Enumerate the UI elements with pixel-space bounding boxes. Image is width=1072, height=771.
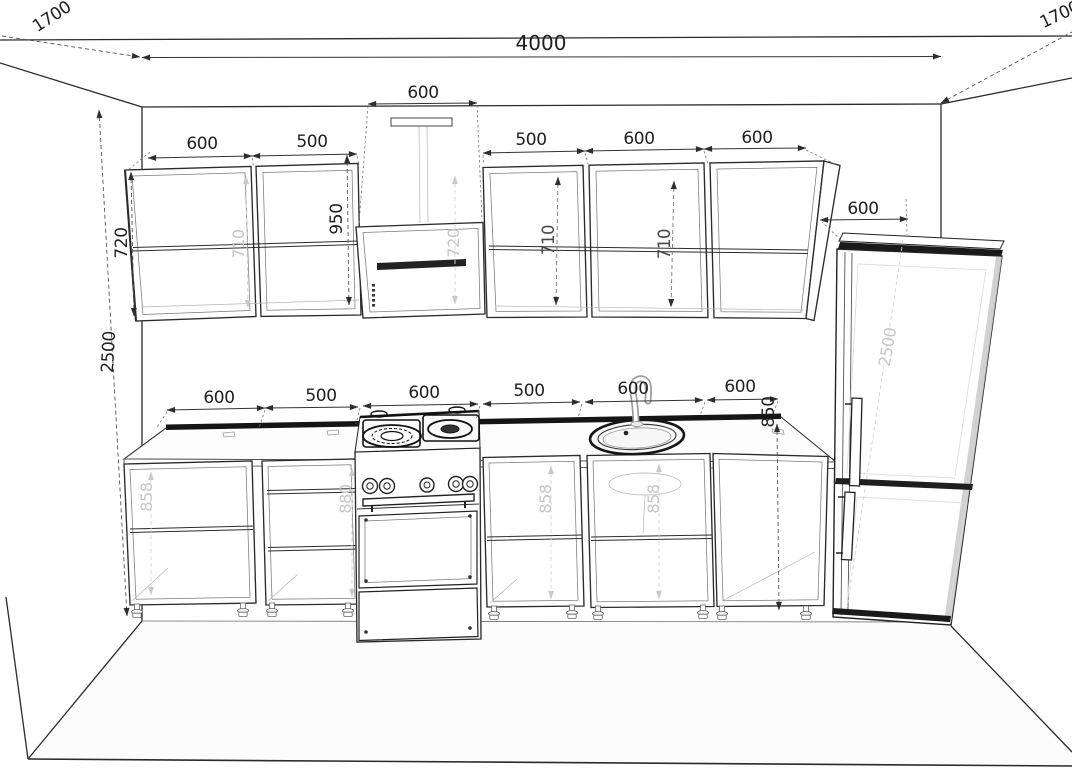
dimension-hood-width: 600: [359, 83, 482, 224]
dim-base-cab-4-label: 500: [513, 381, 544, 401]
dim-bc1-interior-label: 858: [137, 482, 156, 512]
sink-cabinet: [587, 454, 714, 608]
hood-body: [356, 223, 485, 319]
hood-vent-pipe: [419, 126, 428, 223]
dim-wall-cab-height-label: 720: [112, 227, 132, 258]
faucet-base: [631, 422, 643, 427]
burner-cap: [441, 425, 459, 433]
dim-total-width-label: 4000: [516, 31, 567, 55]
dim-wc4-interior-label: 710: [655, 229, 674, 259]
wall-cabinet-3: [483, 165, 587, 317]
base-cabinet-2: [262, 459, 361, 605]
dimension-left-wall-depth: 1700: [2, 0, 140, 57]
drawing-canvas: 4000 1700 1700 2500 600: [0, 0, 1072, 771]
dim-wall-cab-4-label: 600: [623, 129, 654, 149]
dim-wall-cab-1-label: 600: [186, 134, 217, 154]
dimension-wall-height: 2500: [98, 110, 127, 616]
back-wall-top-edge: [142, 104, 941, 107]
cabinet-foot: [488, 606, 499, 619]
dim-wall-cab-2-label: 500: [296, 132, 327, 152]
cabinet-foot: [800, 606, 811, 619]
cabinet-foot: [566, 605, 577, 618]
dim-bc2-interior-label: 880: [336, 484, 355, 514]
right-ceiling-edge: [941, 78, 1072, 104]
floor-plane: [28, 621, 1072, 766]
cabinet-foot: [237, 603, 248, 616]
dim-fridge-width-label: 600: [847, 199, 878, 219]
cabinet-foot: [342, 603, 353, 616]
fridge-handle-upper: [850, 398, 863, 486]
left-wall-bottom-edge: [6, 597, 28, 759]
left-ceiling-edge: [0, 63, 142, 107]
dim-base-cab-2-label: 500: [305, 386, 336, 406]
base-cabinet-6: [713, 454, 828, 607]
wall-cabinet-2: [256, 164, 361, 317]
dim-left-depth-label: 1700: [29, 0, 75, 37]
dimension-total-width: 4000: [142, 31, 941, 58]
dim-stove-width-label: 600: [408, 383, 439, 403]
cabinet-foot: [131, 604, 142, 617]
dim-wall-cab-3-label: 500: [515, 130, 546, 150]
dim-hood-height-label: 720: [444, 228, 463, 258]
refrigerator: [832, 233, 1004, 625]
dim-base-cab-1-label: 600: [203, 388, 234, 408]
dimension-right-wall-depth: 1700: [941, 0, 1072, 103]
dim-bc4-interior-label: 858: [536, 484, 555, 514]
hood-duct: [391, 118, 452, 126]
oven-door: [359, 511, 477, 588]
gas-stove: [355, 407, 481, 642]
dim-wall-height-label: 2500: [98, 331, 120, 374]
dim-counter-height-label: 850: [759, 396, 779, 427]
dim-sink-cab-label: 600: [617, 379, 648, 399]
dim-base-cab-6-label: 600: [724, 377, 755, 397]
stove-drawer: [359, 588, 478, 641]
range-hood: [356, 118, 485, 318]
sink-drain-hole: [624, 431, 629, 436]
wall-cabinet-5: [710, 161, 824, 319]
dim-right-depth-label: 1700: [1037, 0, 1072, 33]
dim-sink-interior-label: 858: [644, 484, 663, 514]
cabinet-foot: [716, 606, 727, 619]
kitchen-elevation-drawing: 4000 1700 1700 2500 600: [0, 0, 1072, 771]
dim-wall-cab-5-label: 600: [741, 128, 772, 148]
dim-hood-width-label: 600: [407, 83, 438, 103]
dim-wc2-interior-label: 710: [229, 229, 248, 259]
base-cabinet-4: [483, 456, 584, 608]
wall-cabinet-4: [589, 163, 708, 318]
dim-hood-clearance-label: 950: [327, 203, 347, 234]
dim-wc3-interior-label: 710: [539, 225, 558, 255]
